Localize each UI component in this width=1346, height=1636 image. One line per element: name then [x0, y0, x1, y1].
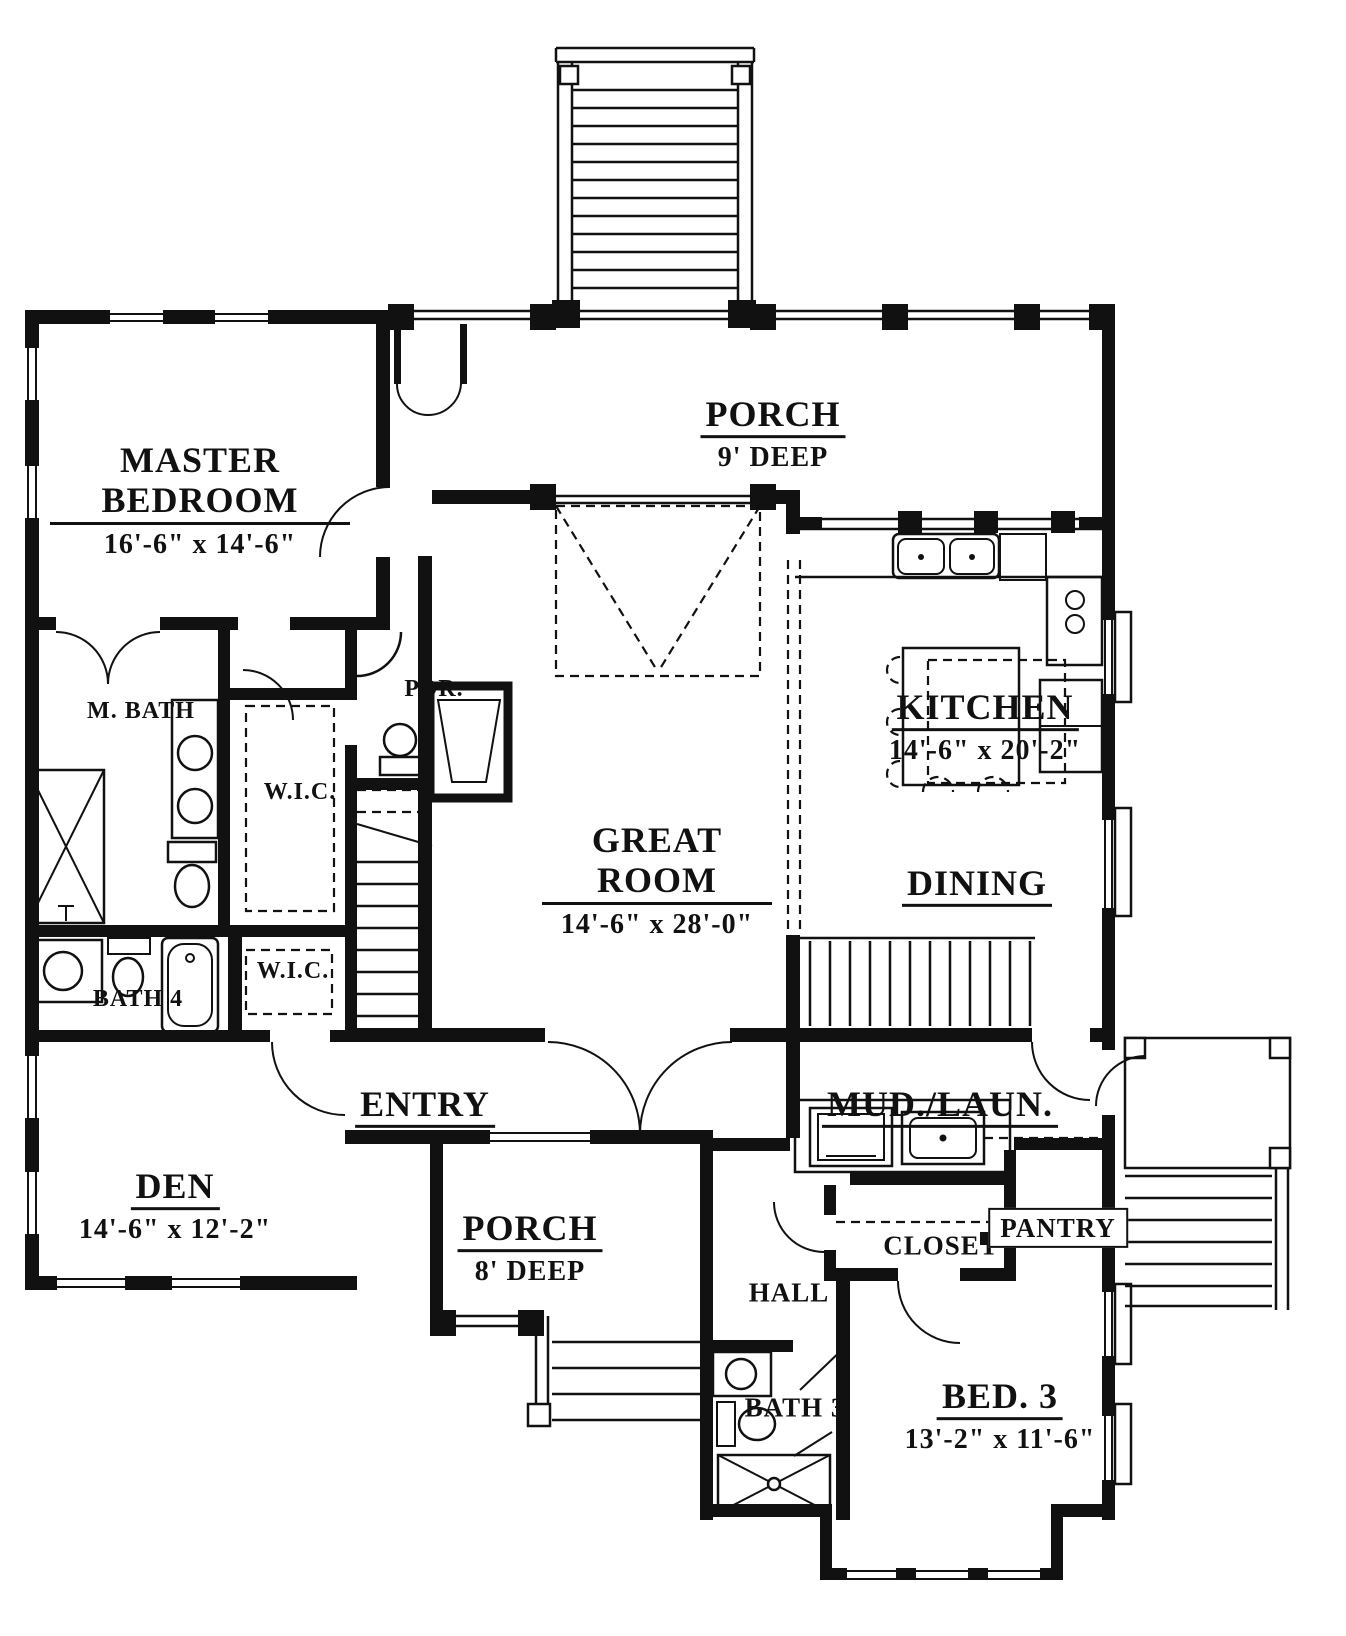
- sink: [726, 1359, 756, 1389]
- master-double-door: [56, 632, 108, 684]
- room-name: HALL: [744, 1277, 835, 1308]
- room-name: KITCHEN: [891, 687, 1078, 731]
- room-label-pantry: PANTRY: [988, 1208, 1128, 1248]
- porch-double-door: [397, 384, 461, 415]
- dishwasher: [1000, 534, 1046, 580]
- room-name: W.I.C.: [259, 779, 341, 807]
- room-label-closet: CLOSET: [878, 1230, 1004, 1261]
- toilet: [175, 865, 209, 907]
- toilet: [384, 724, 416, 756]
- room-label-kitchen: KITCHEN 14'-6" x 20'-2": [889, 687, 1081, 767]
- room-label-porch-top: PORCH 9' DEEP: [701, 394, 846, 474]
- room-name: CLOSET: [878, 1230, 1004, 1261]
- room-name: DEN: [130, 1166, 219, 1210]
- den-door: [272, 1042, 345, 1115]
- top-steps: [552, 48, 756, 328]
- room-label-wic-master: W.I.C.: [259, 779, 341, 807]
- bed3-door: [898, 1281, 960, 1343]
- room-label-entry: ENTRY: [355, 1084, 495, 1128]
- corner-sink: [357, 632, 401, 676]
- room-name: GREAT ROOM: [542, 820, 772, 905]
- room-name: BATH 3: [740, 1392, 851, 1423]
- toilet-tank: [380, 757, 422, 775]
- closet-door: [774, 1202, 824, 1252]
- room-dims: 14'-6" x 20'-2": [889, 735, 1081, 766]
- room-label-bath-4: BATH 4: [88, 986, 188, 1014]
- room-label-mud-laundry: MUD./LAUN.: [822, 1084, 1058, 1128]
- room-dims: 14'-6" x 28'-0": [542, 909, 772, 940]
- sink: [178, 789, 212, 823]
- entry-double-door: [548, 1042, 732, 1134]
- room-label-master-bedroom: MASTER BEDROOM 16'-6" x 14'-6": [50, 440, 350, 560]
- toilet-tank: [108, 938, 150, 954]
- room-name: DINING: [902, 863, 1052, 907]
- room-label-wic-2: W.I.C.: [252, 958, 334, 986]
- upper-stairs: [800, 938, 1035, 1026]
- floor-plan: PORCH 9' DEEP MASTER BEDROOM 16'-6" x 14…: [0, 0, 1346, 1636]
- room-label-bed-3: BED. 3 13'-2" x 11'-6": [905, 1376, 1096, 1456]
- rear-stairs: [1125, 1038, 1290, 1310]
- room-label-bath-3: BATH 3: [740, 1392, 851, 1423]
- room-dims: 14'-6" x 12'-2": [79, 1214, 271, 1245]
- room-label-dining: DINING: [902, 863, 1052, 907]
- room-name: M. BATH: [82, 698, 200, 726]
- master-bath-fixtures: [28, 700, 218, 923]
- room-name: PORCH: [458, 1208, 603, 1252]
- toilet-tank: [168, 842, 216, 862]
- room-name: ENTRY: [355, 1084, 495, 1128]
- kitchen-sink: [893, 534, 999, 578]
- bath4-fixtures: [28, 938, 218, 1032]
- room-dims: 9' DEEP: [701, 442, 846, 473]
- room-label-hall: HALL: [744, 1277, 835, 1308]
- room-name: PANTRY: [988, 1208, 1128, 1248]
- room-name: PDR.: [399, 676, 468, 704]
- room-dims: 16'-6" x 14'-6": [50, 529, 350, 560]
- room-name: BED. 3: [937, 1376, 1063, 1420]
- floor-plan-canvas: [0, 0, 1346, 1636]
- porch-steps: [528, 1316, 700, 1426]
- toilet-tank: [717, 1402, 735, 1446]
- room-name: BATH 4: [88, 986, 188, 1014]
- room-label-den: DEN 14'-6" x 12'-2": [79, 1166, 271, 1246]
- landing-door: [1096, 1056, 1146, 1106]
- sink: [44, 952, 82, 990]
- room-name: W.I.C.: [252, 958, 334, 986]
- room-name: MASTER BEDROOM: [50, 440, 350, 525]
- room-label-master-bath: M. BATH: [82, 698, 200, 726]
- room-name: PORCH: [701, 394, 846, 438]
- room-dims: 13'-2" x 11'-6": [905, 1424, 1096, 1455]
- room-name: MUD./LAUN.: [822, 1084, 1058, 1128]
- room-label-powder-room: PDR.: [399, 676, 468, 704]
- room-label-great-room: GREAT ROOM 14'-6" x 28'-0": [542, 820, 772, 940]
- sink: [178, 736, 212, 770]
- room-dims: 8' DEEP: [458, 1256, 603, 1287]
- room-label-porch-front: PORCH 8' DEEP: [458, 1208, 603, 1288]
